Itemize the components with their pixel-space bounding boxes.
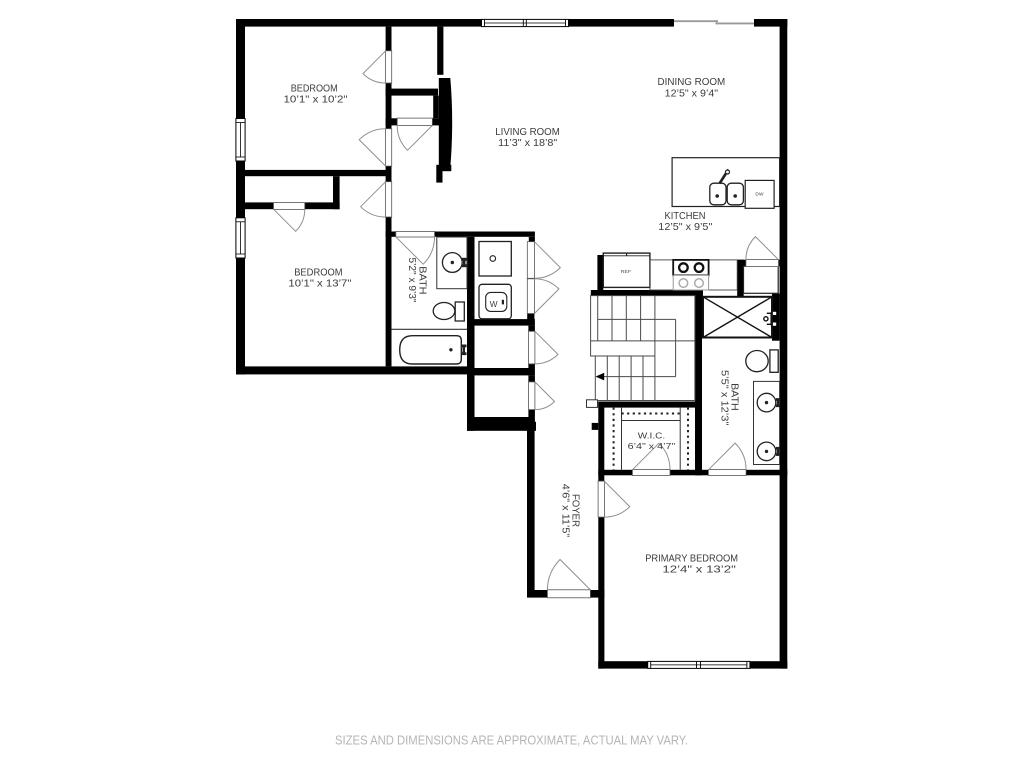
- svg-text:SIZES AND DIMENSIONS ARE APPRO: SIZES AND DIMENSIONS ARE APPROXIMATE, AC…: [335, 733, 688, 747]
- svg-text:10’1" x 13’7": 10’1" x 13’7": [288, 279, 351, 290]
- svg-text:DINING ROOM: DINING ROOM: [658, 77, 726, 88]
- svg-text:12’4" x 13’2": 12’4" x 13’2": [662, 565, 736, 576]
- svg-text:KITCHEN: KITCHEN: [665, 211, 706, 222]
- svg-text:5’5" x 12’3": 5’5" x 12’3": [718, 370, 729, 426]
- svg-text:BEDROOM: BEDROOM: [294, 268, 342, 279]
- svg-text:REF: REF: [621, 269, 631, 275]
- svg-text:W.I.C.: W.I.C.: [638, 432, 665, 441]
- svg-text:12’5" x 9’4": 12’5" x 9’4": [665, 88, 719, 99]
- svg-text:12’5" x 9’5": 12’5" x 9’5": [658, 222, 712, 233]
- svg-text:LIVING ROOM: LIVING ROOM: [495, 127, 560, 138]
- svg-text:PRIMARY BEDROOM: PRIMARY BEDROOM: [645, 554, 738, 565]
- svg-text:DW: DW: [755, 192, 764, 198]
- svg-text:10’1" x 10’2": 10’1" x 10’2": [284, 95, 348, 106]
- svg-text:W: W: [490, 300, 498, 309]
- svg-text:5’2" x 9’3": 5’2" x 9’3": [406, 258, 417, 303]
- svg-text:11’3" x 18’8": 11’3" x 18’8": [498, 138, 557, 149]
- svg-text:4’6" x 11’5": 4’6" x 11’5": [559, 484, 570, 538]
- svg-text:BEDROOM: BEDROOM: [291, 84, 338, 95]
- svg-text:6’4" x 4’7": 6’4" x 4’7": [628, 442, 676, 451]
